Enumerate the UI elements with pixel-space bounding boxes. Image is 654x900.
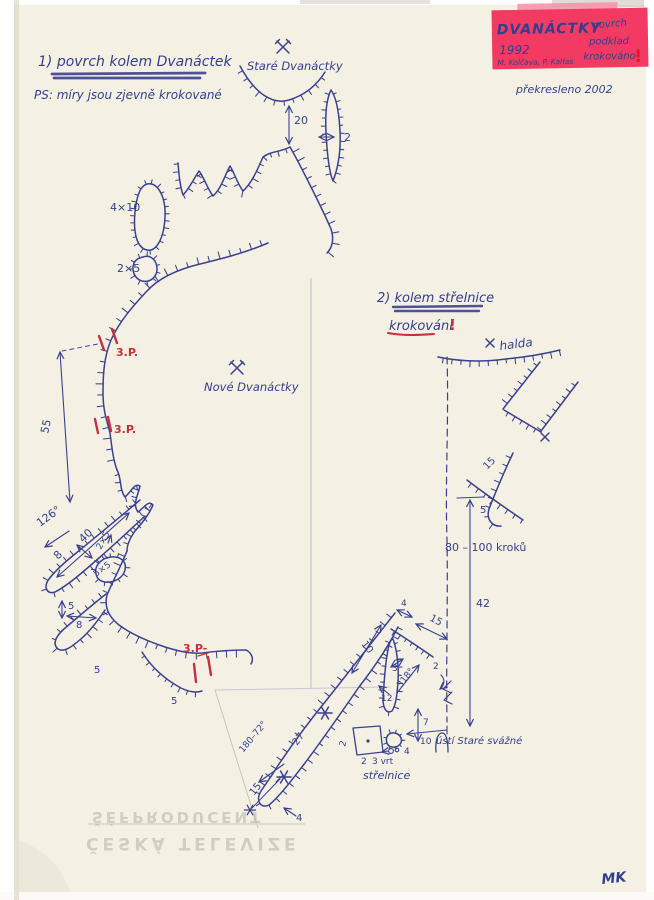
- show-through-watermark: ŠÉFPRODUCENT ČESKÁ TELEVIZE: [86, 808, 305, 855]
- hachure-ticks: [131, 180, 170, 254]
- square-dot: [366, 739, 369, 742]
- measurement-label: 3.P-: [183, 642, 207, 655]
- wall-segment-b: [541, 382, 578, 431]
- old-mine-label: Staré Dvanáctky: [247, 59, 343, 73]
- measurement-label: 4: [296, 813, 302, 824]
- measurement-label: 42: [476, 597, 490, 610]
- heap-label: halda: [499, 335, 534, 353]
- right-ridge-contour: [290, 147, 333, 253]
- measurement-label: 3.P.: [116, 346, 138, 359]
- measurement-label: 80 – 100 kroků: [445, 541, 526, 554]
- watermark-line1: ŠÉFPRODUCENT: [92, 808, 263, 827]
- measurement-label: 12: [381, 694, 392, 704]
- measurement-label: 10: [420, 737, 432, 747]
- hachure-ticks: [506, 413, 535, 433]
- watermark-line2: ČESKÁ TELEVIZE: [86, 833, 300, 855]
- borehole-circle: [389, 749, 394, 754]
- chevron-marks: [443, 681, 452, 704]
- sticky-note-year: 1992: [499, 43, 530, 58]
- sticky-note-authors: M. Kolčava, P. Kalfas: [497, 57, 573, 67]
- measurement-label: 8: [76, 620, 82, 631]
- pit-oval-4x10: [135, 184, 166, 250]
- crossed-hammers-icon: [276, 40, 291, 54]
- heading-underlines: [52, 73, 482, 311]
- new-mine-label: Nové Dvanáctky: [204, 380, 299, 394]
- adit-label: ústí Staré svážné: [436, 735, 522, 747]
- claw-formation: [178, 147, 290, 196]
- borehole-circle: [395, 748, 399, 752]
- measurement-label: 180–72°: [238, 720, 270, 755]
- hachure-ticks: [468, 483, 522, 523]
- crossed-hammers-icon: [230, 361, 245, 375]
- measurement-label: 15: [428, 613, 444, 629]
- measurement-labels: 2024×102×555126°4082×55×558553.P.3.P.3.P…: [34, 114, 526, 824]
- measurement-label: 2: [338, 740, 349, 748]
- hachure-ticks: [101, 554, 237, 659]
- measurement-label: 5: [68, 601, 74, 612]
- hachure-ticks: [392, 631, 429, 658]
- sticky-note-title: DVANÁCTKY: [497, 19, 602, 38]
- author-signature: MK: [601, 869, 628, 888]
- measurement-label: 40: [76, 526, 95, 545]
- paper-edges: [0, 0, 654, 900]
- x-point-icon: [486, 339, 494, 347]
- measurement-label: 27: [291, 731, 307, 748]
- cross-line-a: [467, 480, 523, 520]
- measurement-label: 5: [480, 505, 486, 516]
- wall-segment-a: [503, 362, 540, 409]
- measurement-label: 3.P.: [114, 423, 136, 436]
- measurement-label: 5: [94, 665, 100, 676]
- dashed-survey-line: [446, 357, 447, 722]
- measurement-label: 4: [401, 599, 407, 609]
- sticky-note-word3: krokováno: [583, 50, 636, 63]
- cliff-finger-lobes: [117, 470, 153, 551]
- map-drawing: DVANÁCTKY povrch 1992 podklad krokováno …: [0, 0, 654, 900]
- ps-note: PS: míry jsou zjevně krokované: [34, 88, 222, 102]
- section2-exclamation: !: [449, 316, 456, 334]
- scanned-survey-map-page: DVANÁCTKY povrch 1992 podklad krokováno …: [0, 0, 654, 900]
- measurement-label: 2: [433, 662, 439, 672]
- measurement-label: 20: [294, 114, 308, 127]
- hachure-ticks: [503, 363, 538, 403]
- measurement-label: 55: [38, 418, 54, 434]
- measurement-label: 8: [51, 548, 65, 562]
- measurement-label: 5×5: [92, 560, 113, 579]
- hachure-ticks: [174, 149, 287, 198]
- measurement-label: 15: [481, 455, 498, 472]
- measurement-label: 5: [171, 696, 177, 707]
- redrawn-note: překresleno 2002: [515, 83, 613, 96]
- measurement-label: 2: [361, 757, 367, 767]
- sticky-note: DVANÁCTKY povrch 1992 podklad krokováno …: [491, 2, 648, 70]
- hachure-ticks: [321, 93, 345, 183]
- sticky-note-exclamation: !: [634, 47, 642, 67]
- measurement-label: 3 vrt: [372, 757, 394, 767]
- measurement-label: 2: [344, 131, 351, 144]
- shooting-range-label: střelnice: [363, 769, 410, 782]
- measurement-label: 126°: [34, 503, 63, 529]
- measurement-label: 2×5: [117, 262, 140, 275]
- x-point-icon: [541, 433, 549, 441]
- contour-hook: [246, 650, 252, 664]
- paper-edge-shadow: [14, 0, 19, 900]
- survey-star-icon: [277, 771, 291, 783]
- lens-crack: [326, 90, 340, 181]
- sticky-note-word2: podklad: [588, 36, 630, 48]
- curl-arrow: [440, 675, 444, 689]
- measurement-label: 3: [392, 664, 398, 674]
- measurement-label: 4: [404, 747, 410, 757]
- hachure-ticks: [538, 383, 576, 430]
- section2-heading: 2) kolem střelnice: [377, 291, 494, 306]
- scan-smudge: [300, 0, 430, 4]
- section2-subheading: krokování: [389, 319, 455, 334]
- measurement-label: 4×10: [110, 201, 140, 214]
- measurement-label: 7: [423, 718, 429, 728]
- handwritten-labels: 1) povrch kolem Dvanáctek PS: míry jsou …: [34, 54, 628, 888]
- section1-heading: 1) povrch kolem Dvanáctek: [38, 54, 232, 70]
